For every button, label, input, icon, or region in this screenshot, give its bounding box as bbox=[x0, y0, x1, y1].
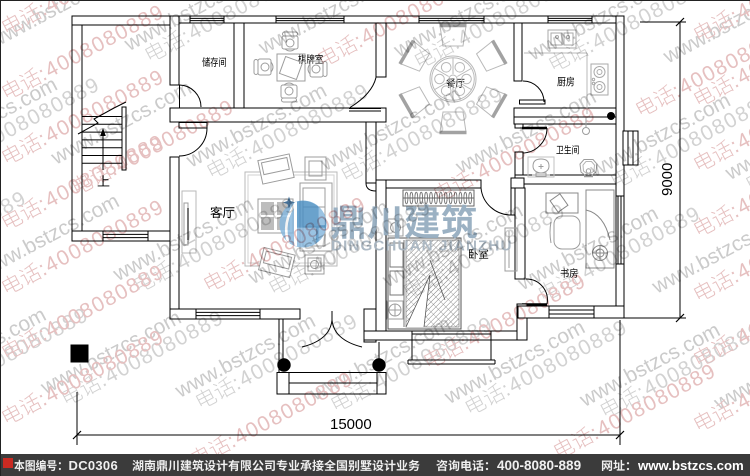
svg-text:400-8080-889: 400-8080-889 bbox=[497, 458, 581, 473]
svg-text:DC0306: DC0306 bbox=[69, 458, 119, 473]
svg-text:15000: 15000 bbox=[330, 416, 372, 433]
svg-text:www.bstzcs.com: www.bstzcs.com bbox=[637, 458, 744, 473]
